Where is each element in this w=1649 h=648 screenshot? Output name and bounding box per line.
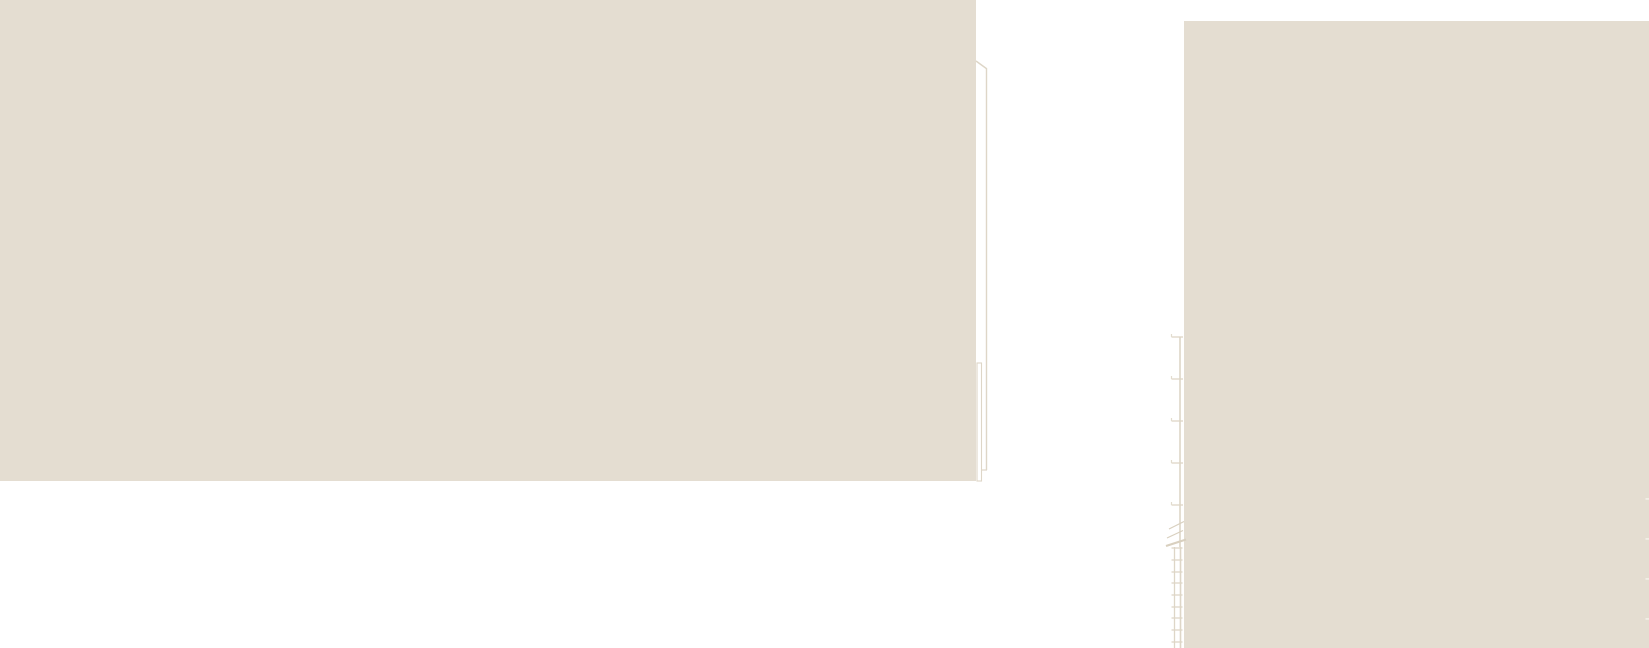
edge-white-tick <box>1646 618 1649 620</box>
eave-diagonal-line <box>976 61 987 69</box>
edge-white-tick <box>1646 498 1649 500</box>
linework-layer <box>0 0 1649 648</box>
break-line-diagonal <box>1169 522 1184 530</box>
drawing-viewport[interactable] <box>0 0 1649 648</box>
break-line-diagonal <box>1166 540 1186 547</box>
edge-white-tick <box>1646 578 1649 580</box>
downpipe-outline <box>977 363 982 481</box>
edge-white-tick <box>1646 538 1649 540</box>
